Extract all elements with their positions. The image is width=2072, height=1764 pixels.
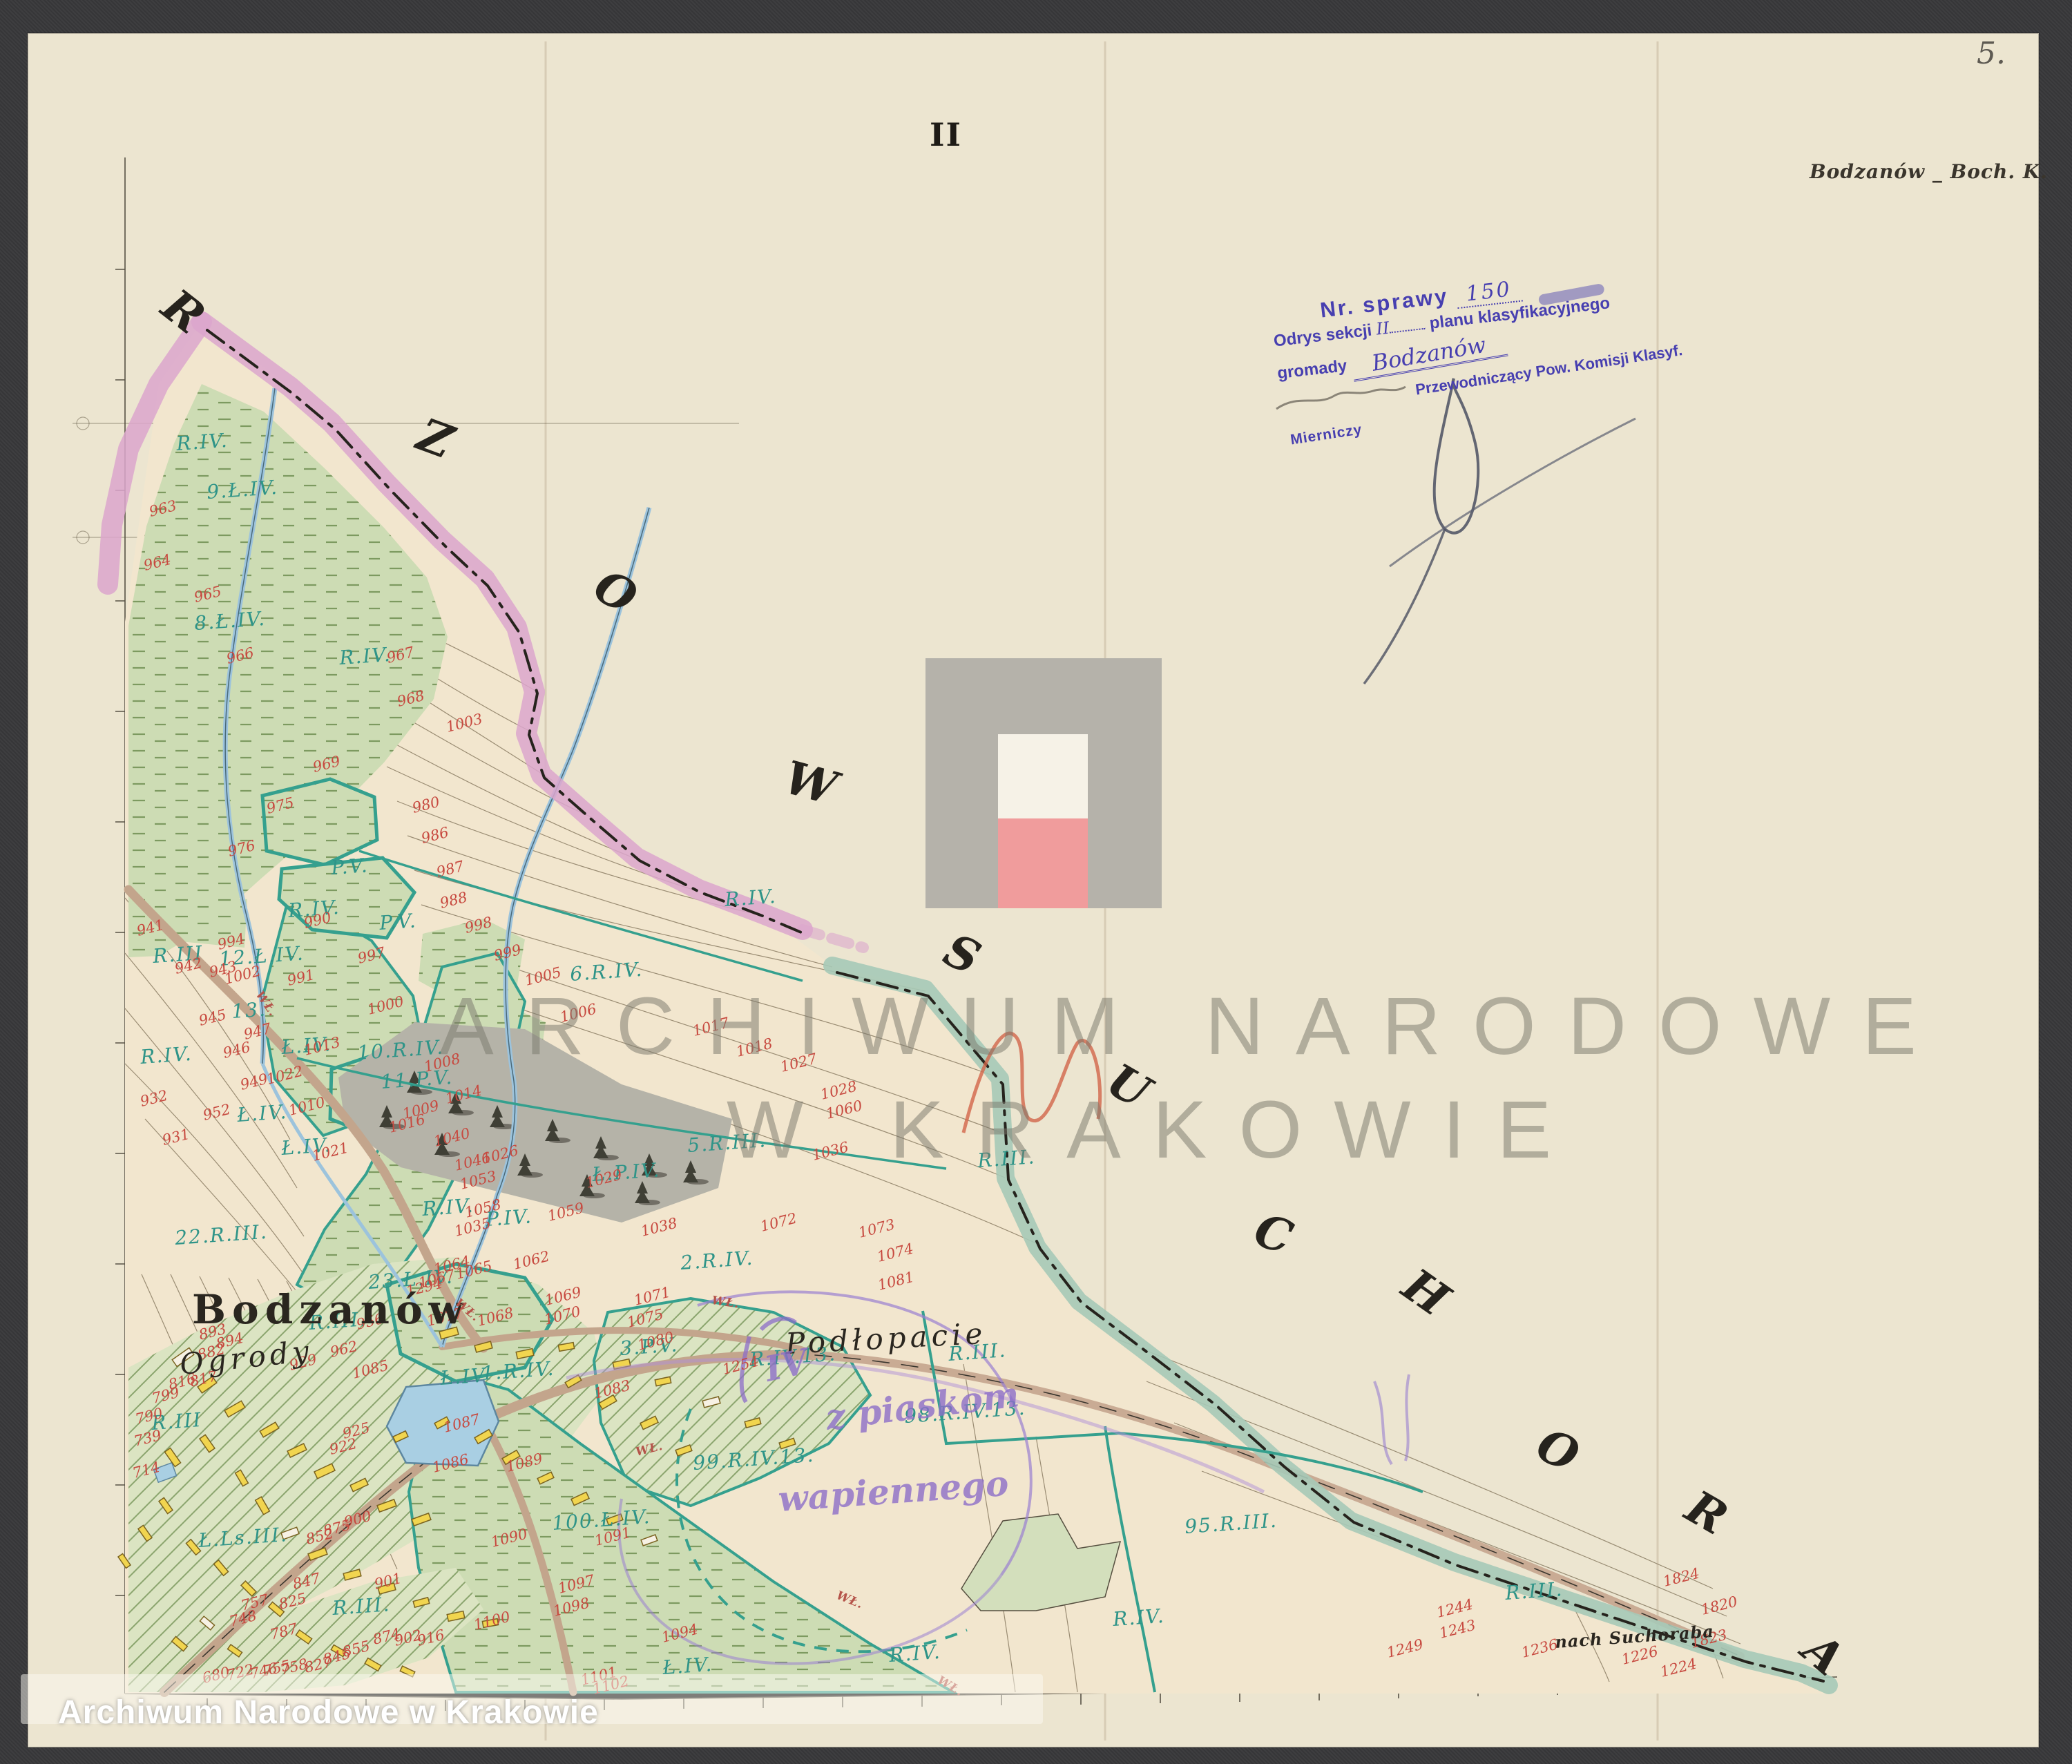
class-label: R.IV.: [338, 643, 392, 669]
section-numeral: II: [930, 116, 962, 153]
logo-flag-white: [998, 734, 1088, 818]
watermark-line-1: ARCHIWUM NARODOWE: [439, 979, 1948, 1073]
class-label: R.IV.: [888, 1640, 941, 1667]
archive-logo: [925, 658, 1162, 908]
archive-scan-stage: R.IV.9.Ł.IV.8.Ł.IV.R.IV.P.V.R.IV.P.V.6.R…: [0, 0, 2072, 1764]
class-label: R.III.: [1504, 1578, 1564, 1604]
class-label: P.V.: [329, 854, 369, 879]
footer-watermark-text: Archiwum Narodowe w Krakowie: [58, 1694, 599, 1732]
class-label: R.IV.: [1111, 1604, 1165, 1631]
class-label: R.III.: [331, 1593, 391, 1620]
class-label: R.IV.: [139, 1042, 193, 1068]
class-label: Ł.IV.: [236, 1100, 288, 1127]
class-label: Ł.IV: [439, 1363, 488, 1390]
logo-flag-red: [998, 818, 1088, 908]
watermark-line-2: W KRAKOWIE: [727, 1083, 1583, 1177]
class-label: R.IV.: [175, 429, 229, 455]
page-number: 5.: [1977, 36, 2006, 71]
sheet-caption: Bodzanów _ Boch. K.: [1810, 160, 2048, 183]
toponym: Bodzanów: [192, 1286, 470, 1333]
class-label: P.V.: [378, 909, 417, 934]
class-label: R.IV.: [723, 885, 777, 911]
